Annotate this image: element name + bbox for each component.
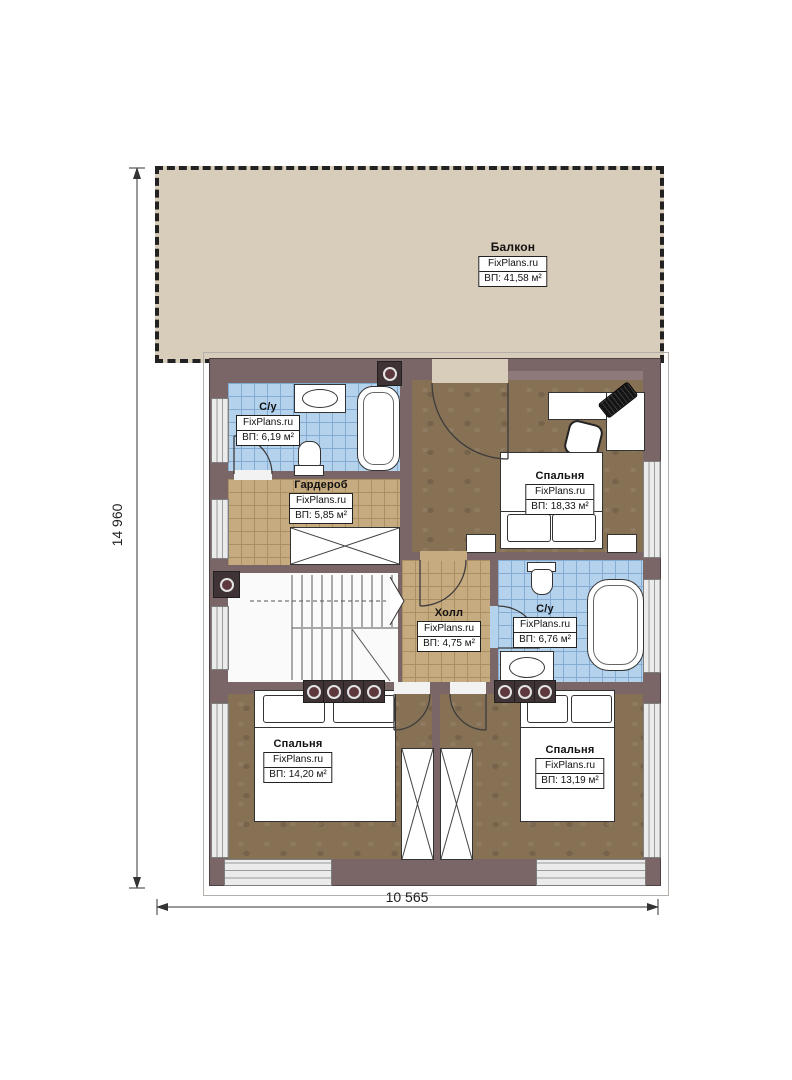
balcony-floor (155, 166, 664, 363)
blanket-line (254, 727, 396, 728)
closet-cross (441, 749, 472, 859)
room-label-bedroom-bottom-right: Спальня FixPlans.ru ВП: 13,19 м² (535, 744, 604, 789)
sink-basin (302, 389, 338, 408)
vent-icon (377, 361, 402, 386)
area-text: ВП: 14,20 м² (264, 768, 331, 783)
window (643, 579, 661, 673)
pillow (571, 695, 612, 723)
watermark-box: FixPlans.ru ВП: 6,19 м² (236, 415, 300, 446)
dimension-height-label: 14 960 (109, 495, 125, 555)
watermark-box: FixPlans.ru ВП: 41,58 м² (478, 256, 547, 287)
area-text: ВП: 6,19 м² (237, 431, 299, 446)
window (224, 859, 332, 886)
room-name: Балкон (491, 240, 536, 254)
dimension-height-line (129, 167, 145, 889)
room-name: Спальня (536, 470, 585, 482)
room-label-hall: Холл FixPlans.ru ВП: 4,75 м² (417, 607, 481, 652)
window (536, 859, 646, 886)
watermark-text: FixPlans.ru (479, 257, 546, 272)
area-text: ВП: 6,76 м² (514, 633, 576, 648)
sink-basin (509, 657, 545, 678)
watermark-box: FixPlans.ru ВП: 14,20 м² (263, 752, 332, 783)
window (643, 461, 661, 558)
floor-staircase (228, 573, 398, 682)
dimension-width-label: 10 565 (377, 889, 437, 905)
bathtub-inner (593, 585, 638, 665)
toilet-icon (298, 441, 321, 468)
room-label-bedroom-bottom-left: Спальня FixPlans.ru ВП: 14,20 м² (263, 738, 332, 783)
watermark-text: FixPlans.ru (264, 753, 331, 768)
room-label-bath-middle: С/у FixPlans.ru ВП: 6,76 м² (513, 603, 577, 648)
window (211, 499, 229, 559)
door-opening-hall (420, 551, 467, 561)
vent-icon (494, 680, 516, 703)
blanket-line (520, 727, 615, 728)
dimension-arrow (133, 877, 141, 889)
watermark-box: FixPlans.ru ВП: 13,19 м² (535, 758, 604, 789)
vent-icon (363, 680, 385, 703)
area-text: ВП: 18,33 м² (526, 500, 593, 515)
vent-icon (213, 571, 240, 598)
watermark-text: FixPlans.ru (514, 618, 576, 633)
window (211, 606, 229, 670)
toilet-icon (531, 569, 553, 595)
room-name: С/у (259, 401, 277, 413)
floor-plan: 14 960 10 565 Балкон FixPlans.ru ВП: 41,… (0, 0, 792, 1080)
watermark-text: FixPlans.ru (536, 759, 603, 774)
closet-icon (290, 527, 400, 565)
dimension-arrow (647, 903, 659, 911)
pillow (552, 514, 596, 542)
room-name: Гардероб (294, 479, 348, 491)
watermark-box: FixPlans.ru ВП: 6,76 м² (513, 617, 577, 648)
room-label-bath-top: С/у FixPlans.ru ВП: 6,19 м² (236, 401, 300, 446)
vent-icon (514, 680, 536, 703)
watermark-box: FixPlans.ru ВП: 18,33 м² (525, 484, 594, 515)
watermark-box: FixPlans.ru ВП: 4,75 м² (417, 621, 481, 652)
nightstand-icon (607, 534, 637, 553)
window (211, 703, 229, 858)
area-text: ВП: 5,85 м² (290, 509, 352, 524)
room-label-wardrobe: Гардероб FixPlans.ru ВП: 5,85 м² (289, 479, 353, 524)
vent-icon (343, 680, 365, 703)
window (211, 398, 229, 463)
closet-icon (440, 748, 473, 860)
door-opening-balcony (432, 359, 508, 383)
door-opening-bath-top (234, 470, 272, 480)
closet-cross (291, 528, 399, 564)
bathtub-icon (587, 579, 644, 671)
bathtub-inner (363, 392, 394, 465)
dimension-line (129, 168, 145, 888)
watermark-text: FixPlans.ru (418, 622, 480, 637)
watermark-box: FixPlans.ru ВП: 5,85 м² (289, 493, 353, 524)
dimension-arrow (156, 903, 168, 911)
room-name: Спальня (274, 738, 323, 750)
closet-icon (401, 748, 434, 860)
vent-icon (323, 680, 345, 703)
door-opening-bedroom-bottom-right (450, 682, 486, 694)
nightstand-icon (466, 534, 496, 553)
area-text: ВП: 4,75 м² (418, 637, 480, 652)
room-name: Спальня (546, 744, 595, 756)
vent-icon (534, 680, 556, 703)
door-opening-bedroom-bottom-left (394, 682, 430, 694)
pillow (507, 514, 551, 542)
room-label-bedroom-right: Спальня FixPlans.ru ВП: 18,33 м² (525, 470, 594, 515)
area-text: ВП: 41,58 м² (479, 272, 546, 287)
toilet-tank (294, 465, 324, 476)
bathtub-icon (357, 386, 400, 471)
area-text: ВП: 13,19 м² (536, 774, 603, 789)
watermark-text: FixPlans.ru (526, 485, 593, 500)
window (643, 703, 661, 858)
room-label-balcony: Балкон FixPlans.ru ВП: 41,58 м² (478, 240, 547, 287)
room-name: Холл (435, 607, 463, 619)
dimension-arrow (133, 167, 141, 179)
closet-cross (402, 749, 433, 859)
room-name: С/у (536, 603, 554, 615)
sink-icon (294, 384, 346, 413)
door-opening-bath-middle (490, 606, 498, 648)
watermark-text: FixPlans.ru (237, 416, 299, 431)
vent-icon (303, 680, 325, 703)
watermark-text: FixPlans.ru (290, 494, 352, 509)
